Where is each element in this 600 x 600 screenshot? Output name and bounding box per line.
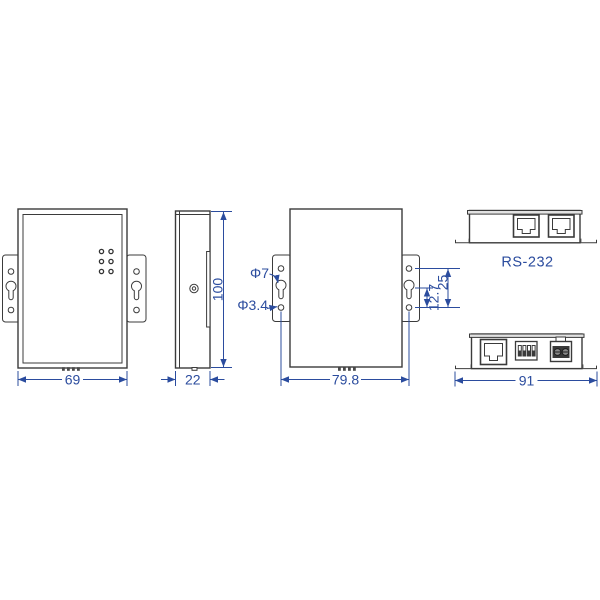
dimension-width-91: 91 — [455, 372, 597, 389]
screw-hole — [8, 307, 14, 313]
device-dimension-drawing: 69 100 22 — [0, 0, 600, 600]
screw-hole — [406, 305, 412, 311]
dimension-depth-22: 22 — [161, 371, 225, 388]
grounding-screw — [190, 284, 198, 292]
dimension-label-69: 69 — [65, 372, 81, 388]
screw-hole — [8, 269, 14, 275]
screw-hole — [134, 307, 140, 313]
bottom-vent-teeth — [338, 367, 356, 371]
callout-label-phi7: Φ7 — [250, 265, 269, 281]
rj45-port-icon — [481, 340, 507, 365]
callout-screw-hole-diameter: Φ3.4 — [237, 297, 277, 313]
screw-hole — [278, 266, 284, 272]
dimension-label-79-8: 79.8 — [332, 372, 359, 388]
dip-switch-icon — [516, 342, 538, 361]
screw-hole — [134, 269, 140, 275]
bottom-panel-view: 91 — [455, 334, 597, 389]
rear-panel-view: RS-232 — [455, 211, 597, 271]
device-body-back — [290, 209, 402, 367]
dimension-label-100: 100 — [210, 278, 226, 302]
side-view: 100 22 — [161, 211, 232, 388]
front-view: 69 — [3, 209, 147, 388]
rj45-port-icon — [514, 215, 540, 237]
dimension-label-25: 25 — [435, 275, 451, 291]
dimension-label-91: 91 — [519, 373, 535, 389]
dimension-label-22: 22 — [185, 372, 201, 388]
bottom-foot-notch — [192, 368, 197, 371]
back-view: Φ7 Φ3.4 79.8 12.7 25 — [237, 209, 460, 388]
top-lip — [470, 334, 585, 337]
device-body-front — [18, 209, 127, 368]
dimension-hole-offsets: 12.7 25 — [415, 269, 460, 312]
ports-label-rs232: RS-232 — [501, 255, 553, 271]
technical-drawing-canvas: 69 100 22 — [0, 0, 600, 600]
dimension-height-100: 100 — [210, 212, 233, 368]
callout-label-phi3-4: Φ3.4 — [237, 297, 268, 313]
screw-hole — [278, 305, 284, 311]
rj45-port-icon — [549, 215, 575, 237]
top-lip — [468, 211, 583, 215]
dimension-width-69: 69 — [18, 371, 127, 388]
screw-hole — [406, 266, 412, 272]
